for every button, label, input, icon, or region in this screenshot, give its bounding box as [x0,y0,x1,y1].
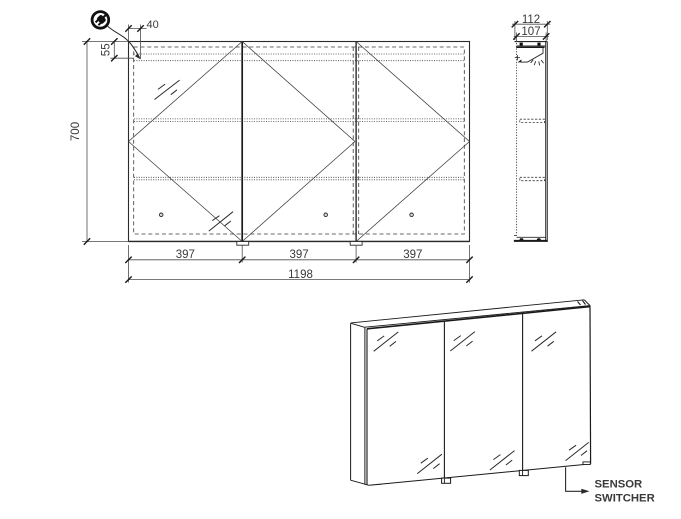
svg-text:397: 397 [290,249,309,261]
svg-text:397: 397 [403,249,422,261]
svg-text:SWITCHER: SWITCHER [595,493,655,505]
svg-text:40: 40 [147,19,159,31]
svg-text:397: 397 [176,249,195,261]
svg-text:55: 55 [101,43,113,56]
svg-text:SENSOR: SENSOR [595,479,643,491]
svg-text:700: 700 [70,122,82,141]
svg-text:1198: 1198 [288,269,313,281]
svg-text:107: 107 [521,26,540,38]
svg-text:112: 112 [522,14,540,26]
